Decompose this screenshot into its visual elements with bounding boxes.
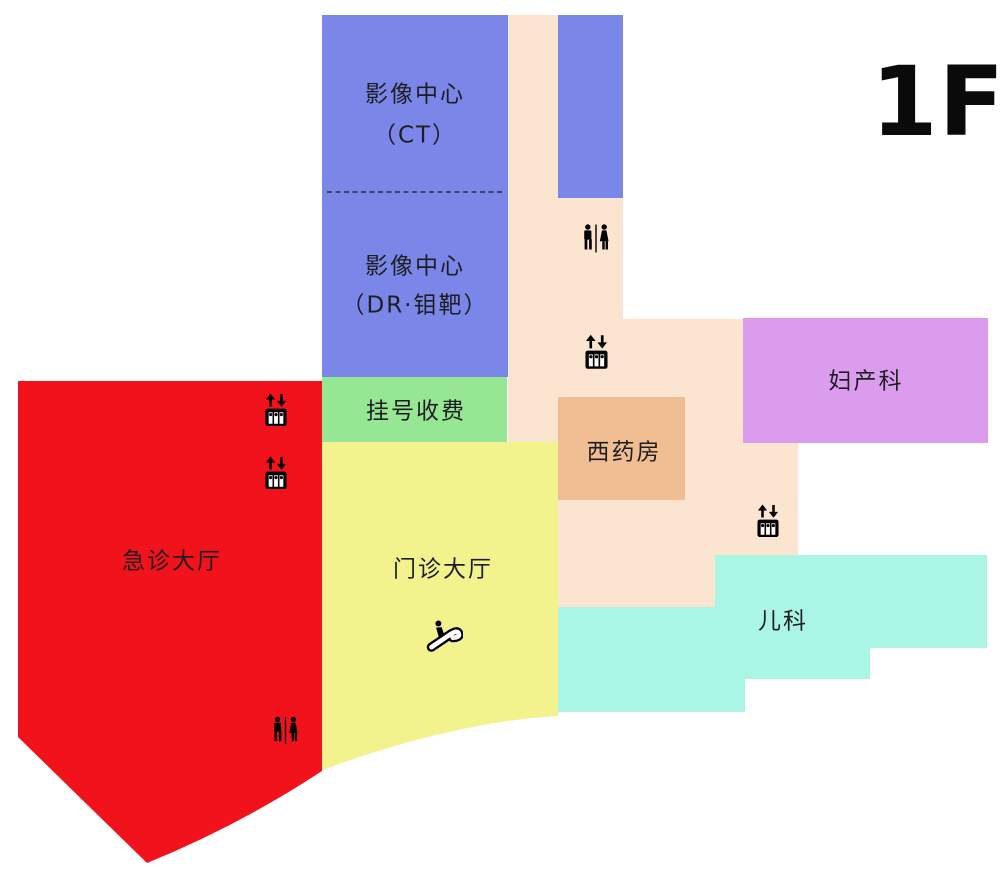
- registration-label: 挂号收费: [366, 401, 466, 424]
- imaging-center-room: [322, 15, 508, 377]
- imaging-ct-label-line2: （CT）: [373, 125, 457, 148]
- pharmacy-label: 西药房: [587, 442, 662, 465]
- floor-label: 1F: [871, 54, 1005, 150]
- imaging-ct-label-line1: 影像中心: [365, 84, 465, 107]
- pediatrics-label: 儿科: [758, 611, 808, 634]
- emergency-hall-label: 急诊大厅: [122, 551, 222, 574]
- hospital-floor-map: 影像中心 （CT） 影像中心 （DR·钼靶） 挂号收费 急诊大厅 门诊大厅 西药…: [0, 0, 1005, 874]
- imaging-dr-label-line1: 影像中心: [365, 256, 465, 279]
- imaging-annex-room: [558, 15, 623, 198]
- outpatient-hall-label: 门诊大厅: [393, 559, 493, 582]
- outpatient-hall-area: [322, 442, 558, 770]
- emergency-hall-area: [18, 381, 322, 863]
- obstetrics-label: 妇产科: [829, 371, 904, 394]
- imaging-dr-label-line2: （DR·钼靶）: [341, 295, 488, 318]
